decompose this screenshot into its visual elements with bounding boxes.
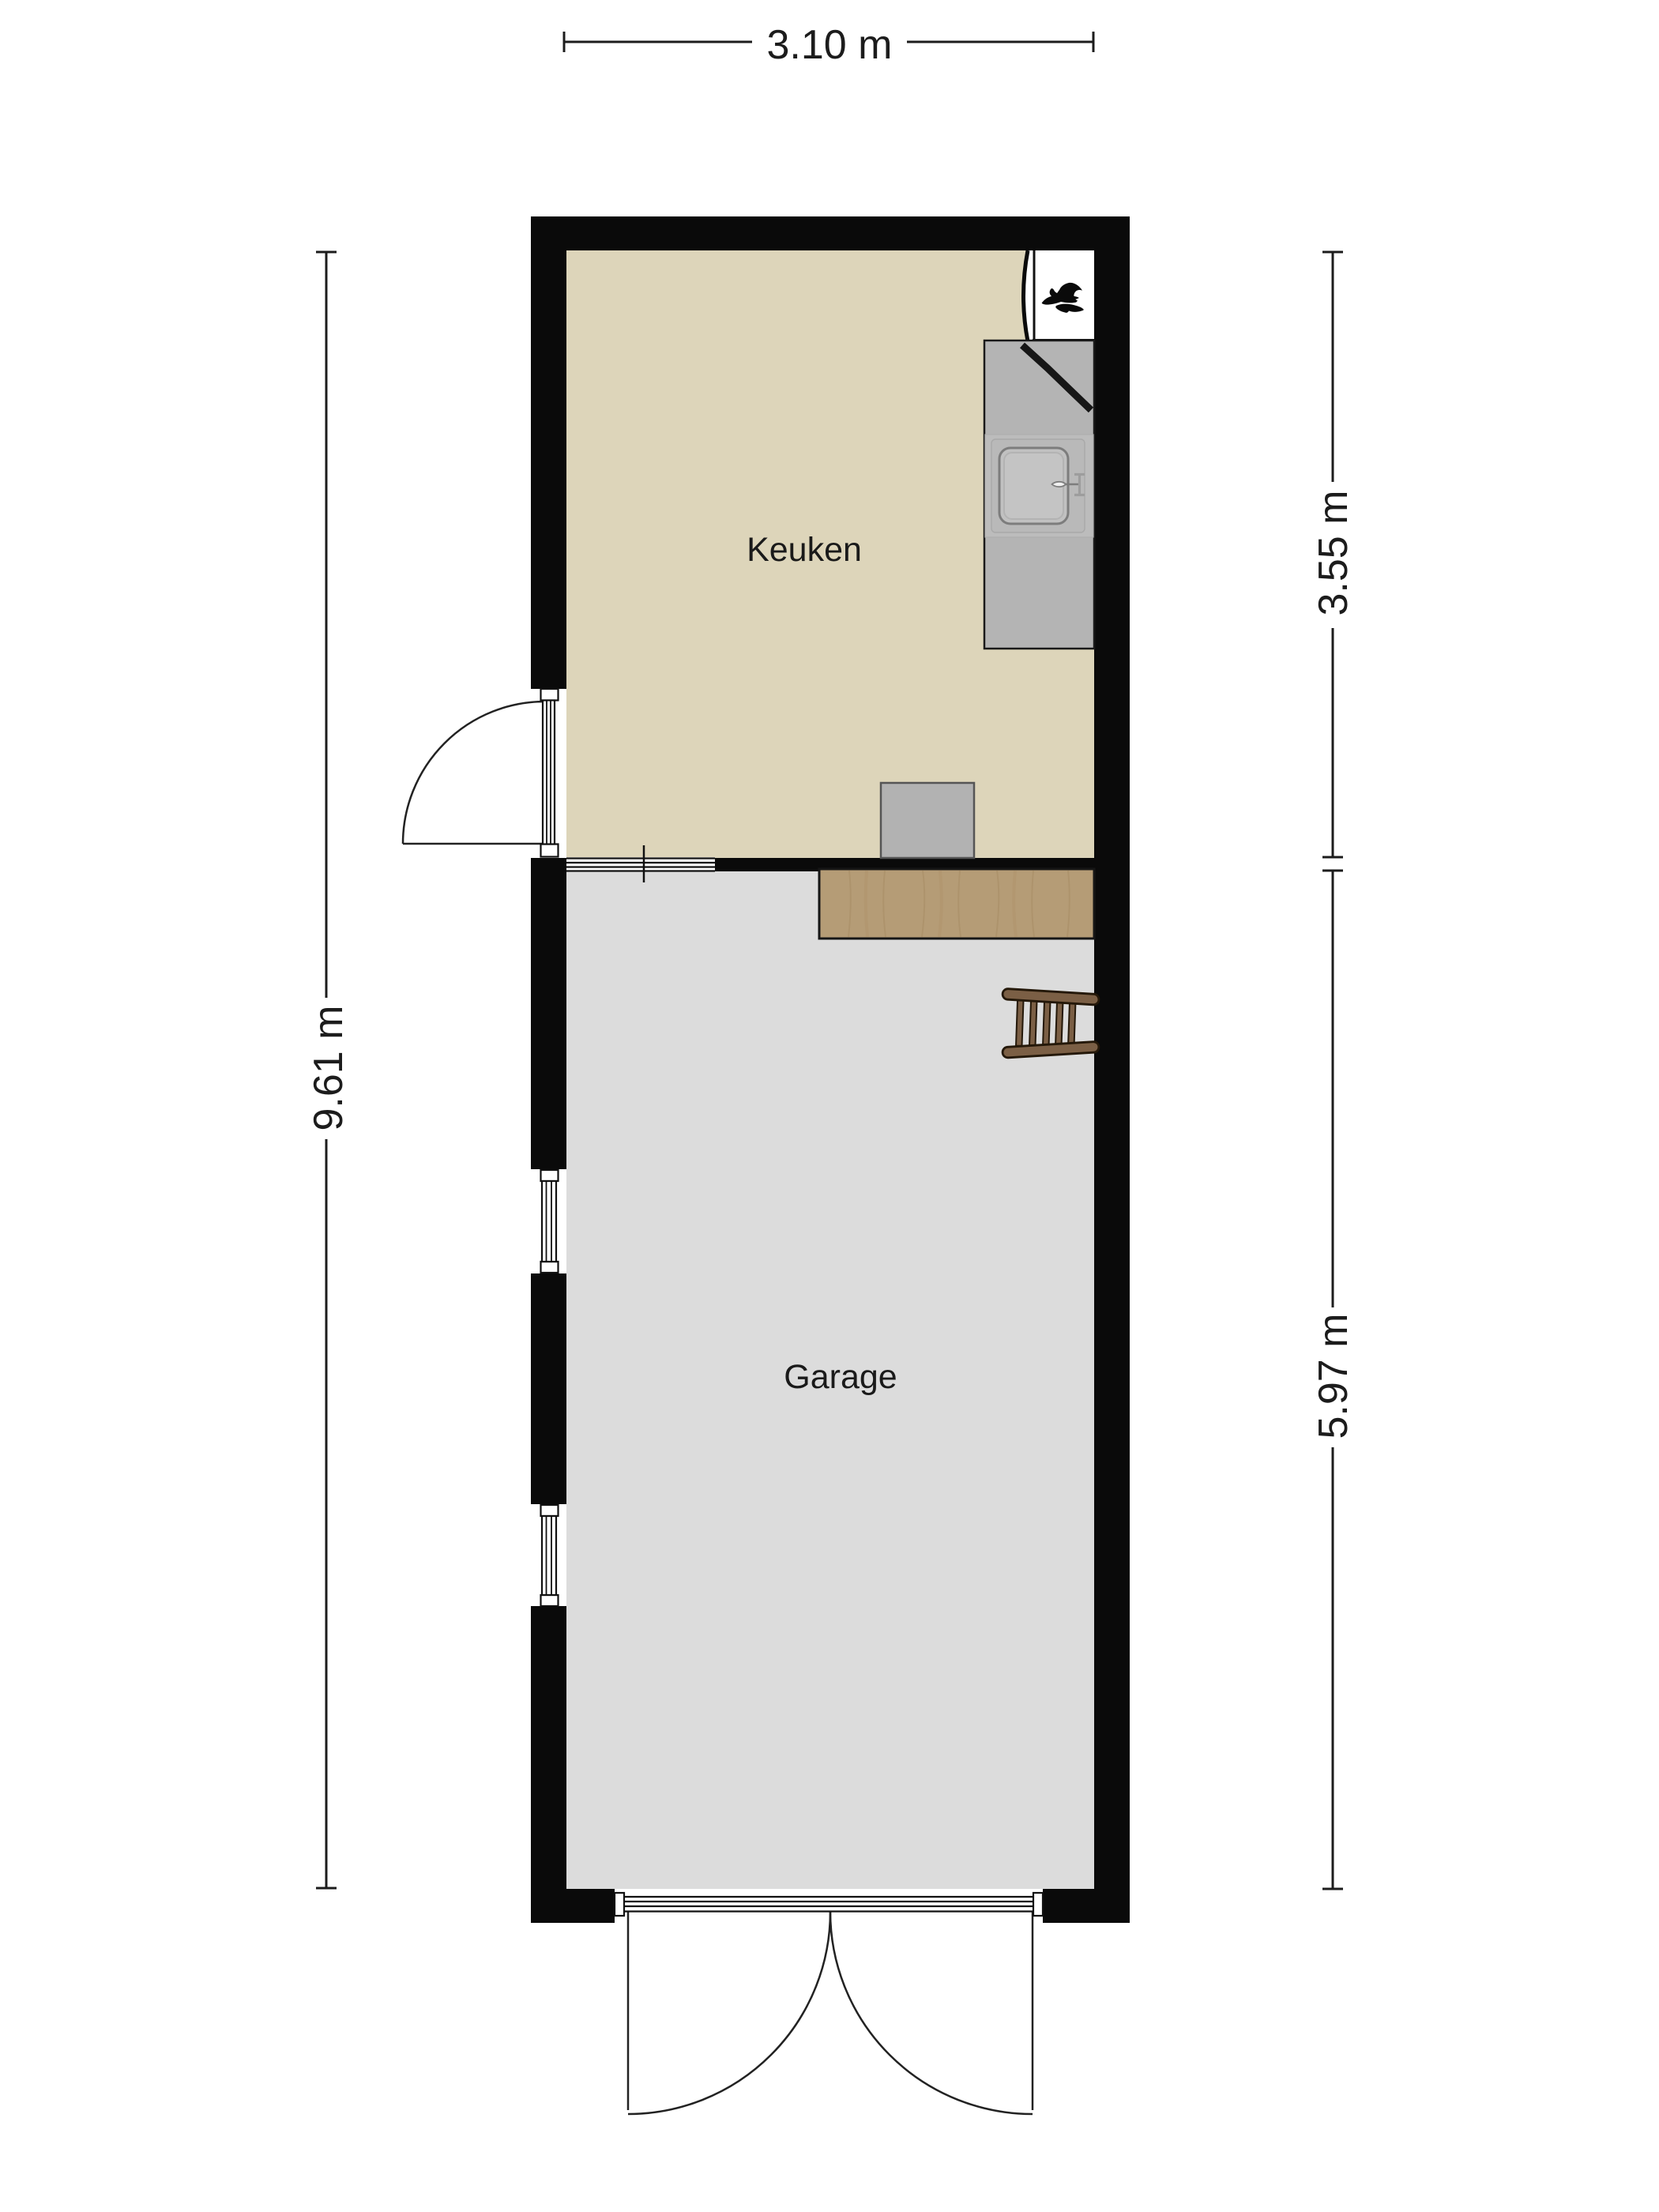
svg-text:9.61 m: 9.61 m [306, 1006, 352, 1131]
svg-text:Keuken: Keuken [747, 531, 862, 569]
svg-text:5.97 m: 5.97 m [1311, 1314, 1356, 1439]
svg-text:3.10 m: 3.10 m [767, 22, 893, 68]
svg-text:Garage: Garage [784, 1358, 897, 1396]
svg-text:3.55 m: 3.55 m [1311, 491, 1356, 616]
